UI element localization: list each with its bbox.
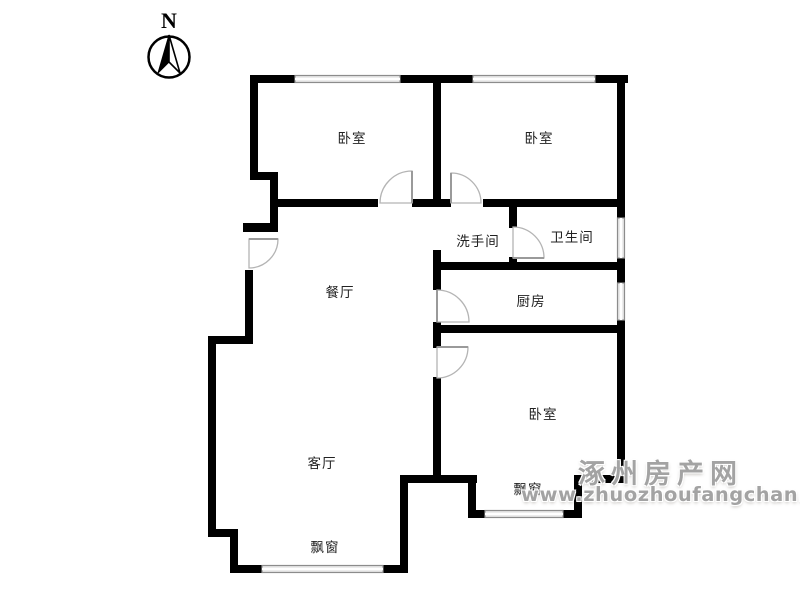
- wall-segment: [433, 75, 441, 207]
- room-label-bathroom: 卫生间: [550, 226, 594, 246]
- door-arc: [451, 173, 481, 203]
- wall-segment: [245, 270, 253, 344]
- compass-icon: [149, 35, 190, 78]
- door-arc: [437, 347, 468, 378]
- wall-segment: [433, 262, 625, 270]
- room-label-washroom: 洗手间: [456, 230, 500, 250]
- wall-segment: [441, 199, 451, 207]
- wall-segment: [243, 223, 278, 232]
- door-arc: [513, 227, 544, 258]
- wall-segment: [617, 75, 625, 483]
- wall-segment: [412, 199, 441, 207]
- door-arc: [249, 239, 278, 268]
- compass-north-label: N: [161, 8, 177, 34]
- room-label-bedroom-top-left: 卧室: [338, 127, 367, 147]
- room-label-living: 客厅: [308, 452, 337, 472]
- door-arc: [437, 290, 469, 322]
- floor-plan: N 卧室 卧室 洗手间 卫生间 餐厅 厨房 卧室 客厅 飘窗 飘窗 涿州房产网 …: [0, 0, 800, 600]
- floor-plan-drawing: [0, 0, 800, 600]
- room-label-bay-window-living: 飘窗: [311, 536, 340, 556]
- door-arc: [380, 171, 412, 203]
- room-label-dining: 餐厅: [326, 281, 355, 301]
- wall-segment: [433, 377, 441, 483]
- room-label-bedroom-right: 卧室: [529, 403, 558, 423]
- wall-segment: [509, 207, 517, 228]
- wall-segment: [250, 75, 258, 180]
- wall-segment: [208, 336, 216, 537]
- wall-segment: [400, 475, 408, 573]
- room-label-kitchen: 厨房: [517, 290, 546, 310]
- wall-segment: [270, 199, 378, 207]
- room-label-bedroom-top-right: 卧室: [525, 127, 554, 147]
- watermark-site-url: www.zhuozhoufangchan.com: [521, 483, 800, 506]
- wall-segment: [483, 199, 625, 207]
- wall-segment: [433, 325, 625, 333]
